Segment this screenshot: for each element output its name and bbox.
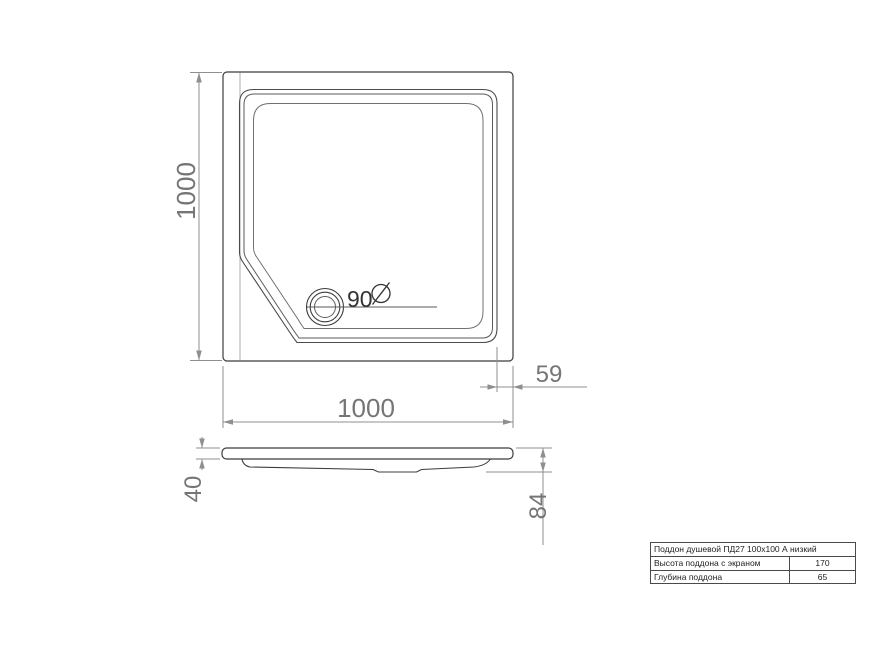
drawing-page: 90 1000 1000 (0, 0, 886, 661)
dimension-top-height: 1000 (171, 73, 222, 361)
spec-table-title: Поддон душевой ПД27 100x100 А низкий (651, 543, 855, 556)
dimension-total-height: 84 (486, 448, 552, 545)
spec-table-row-depth: Глубина поддона 65 (651, 570, 855, 583)
drain-offset-label: 59 (536, 361, 563, 388)
spec-table-row-height: Высота поддона с экраном 170 (651, 556, 855, 570)
spec-table-title-row: Поддон душевой ПД27 100x100 А низкий (651, 543, 855, 556)
diameter-symbol-icon (372, 283, 390, 305)
top-width-label: 1000 (337, 393, 395, 423)
dimension-drain-offset: 59 (480, 347, 587, 392)
spec-value-height: 170 (790, 557, 855, 570)
dimension-top-width: 1000 (223, 366, 513, 428)
side-bottom-profile (242, 459, 491, 472)
tray-outer-edge (223, 72, 513, 361)
dimension-rim-height: 40 (180, 437, 220, 502)
total-height-label: 84 (525, 493, 552, 520)
drain-diameter-label: 90 (347, 286, 373, 312)
rim-height-label: 40 (180, 476, 207, 503)
spec-table: Поддон душевой ПД27 100x100 А низкий Выс… (650, 542, 856, 584)
spec-value-depth: 65 (790, 571, 855, 583)
spec-label-height: Высота поддона с экраном (651, 557, 790, 570)
side-view (222, 448, 513, 472)
spec-label-depth: Глубина поддона (651, 571, 790, 583)
top-view: 90 (223, 72, 513, 361)
top-height-label: 1000 (171, 162, 201, 220)
side-rim-profile (222, 448, 513, 459)
